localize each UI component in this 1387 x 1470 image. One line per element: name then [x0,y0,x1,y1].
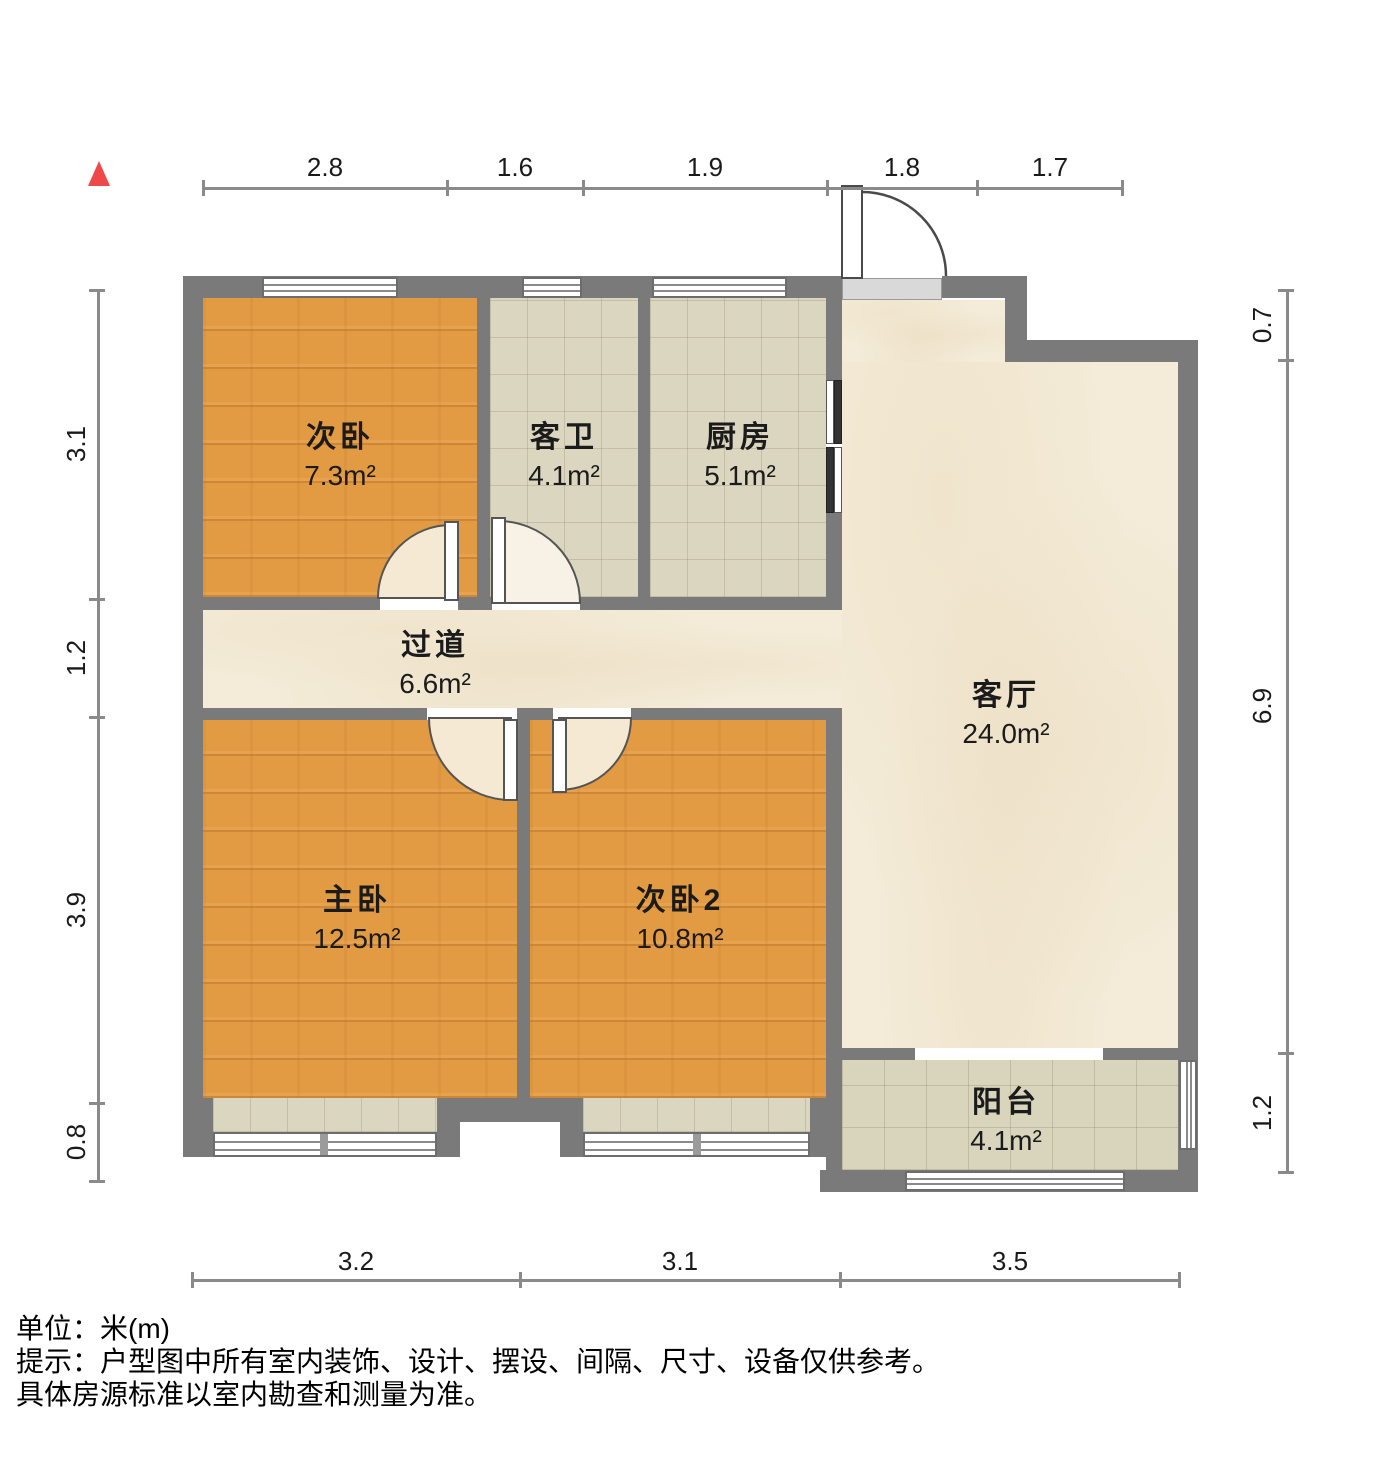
wall-kitchen-right-upper [826,298,842,380]
wall-corridor-top-2 [458,597,492,610]
kitchen-slide-door-panel-1 [826,380,834,444]
wall-step-horizontal [1027,340,1198,362]
dim-top-3: 1.9 [665,152,745,182]
window-bedroom2 [262,277,398,298]
dim-line-top [203,187,1123,190]
wall-corridor-bottom-1 [183,708,427,720]
dim-line-bottom [192,1279,1180,1282]
kitchen-slide-door-panel-4 [834,447,842,513]
dim-tick [89,1102,105,1105]
wall-corridor-bottom-2 [517,708,553,720]
dim-tick [89,716,105,719]
wall-bathroom-kitchen [638,298,650,610]
room-area: 10.8m² [636,923,725,955]
room-label-bedroom2: 次卧 7.3m² [304,412,376,492]
bay-stub-3 [560,1122,583,1157]
footer-unit-line: 单位：米(m) [16,1312,940,1345]
dim-tick [519,1272,522,1288]
room-name: 主卧 [313,875,400,919]
room-area: 4.1m² [528,460,600,492]
dim-tick [1178,1272,1181,1288]
dim-bottom-1: 3.2 [316,1246,396,1276]
dim-bottom-3: 3.5 [970,1246,1050,1276]
floorplan-canvas: 次卧 7.3m² 客卫 4.1m² 厨房 5.1m² 过道 6.6m² 客厅 2… [0,0,1387,1470]
room-name: 过道 [399,620,471,664]
wall-bottom-seg-1 [183,1098,213,1122]
room-area: 24.0m² [962,718,1049,750]
room-label-master: 主卧 12.5m² [313,875,400,955]
entry-door-leaf [842,186,862,278]
dim-top-2: 1.6 [475,152,555,182]
wall-master-bedroom3 [517,720,530,1098]
room-name: 客厅 [962,670,1049,714]
bay-stub-2 [437,1122,460,1157]
wall-corridor-bottom-3 [631,708,842,720]
footer-notice-line2: 具体房源标准以室内勘查和测量为准。 [16,1378,940,1411]
corridor-floor [203,610,842,708]
dim-tick [1278,1171,1294,1174]
room-name: 次卧 [304,412,376,456]
livingroom-floor-upper [842,300,1005,362]
wall-corridor-top-3 [580,597,842,610]
dim-top-4: 1.8 [862,152,942,182]
kitchen-slide-door-panel-3 [826,447,834,513]
room-area: 6.6m² [399,668,471,700]
dim-tick [1121,180,1124,196]
bay-window-sill-master [213,1098,437,1132]
dim-tick [1278,1052,1294,1055]
window-bathroom [522,277,582,298]
room-label-bedroom3: 次卧2 10.8m² [636,875,725,955]
entry-door-arc [862,192,946,276]
entry-threshold [842,278,942,300]
dim-top-1: 2.8 [285,152,365,182]
dim-tick [446,180,449,196]
room-name: 阳台 [970,1077,1042,1121]
room-area: 12.5m² [313,923,400,955]
dim-right-3: 1.2 [1247,1073,1277,1153]
wall-bottom-seg-3 [810,1098,842,1122]
dim-right-1: 0.7 [1247,285,1277,365]
dim-line-left [97,290,100,1182]
dim-tick [191,1272,194,1288]
room-area: 5.1m² [704,460,776,492]
dim-left-2: 1.2 [61,618,91,698]
wall-step-vertical [1005,276,1027,362]
window-kitchen [652,277,787,298]
room-name: 客卫 [528,412,600,456]
window-balcony-right [1179,1060,1197,1150]
room-label-corridor: 过道 6.6m² [399,620,471,700]
dim-right-2: 6.9 [1247,666,1277,746]
dim-left-1: 3.1 [61,404,91,484]
room-label-bathroom: 客卫 4.1m² [528,412,600,492]
dim-top-5: 1.7 [1010,152,1090,182]
dim-line-right [1286,290,1289,1173]
dim-tick [826,180,829,196]
kitchen-slide-door-panel-2 [834,380,842,444]
window-balcony-bottom [905,1171,1125,1191]
dim-tick [582,180,585,196]
wall-kitchen-right-lower [826,513,842,610]
room-name: 次卧2 [636,875,725,919]
room-area: 4.1m² [970,1125,1042,1157]
bay-window-master [213,1132,437,1157]
dim-bottom-2: 3.1 [640,1246,720,1276]
bay-stub-4 [810,1122,826,1157]
room-label-livingroom: 客厅 24.0m² [962,670,1049,750]
north-arrow-icon [88,161,110,186]
dim-tick [1278,289,1294,292]
bay-window-sill-bedroom3 [583,1098,810,1132]
dim-tick [89,598,105,601]
dim-tick [839,1272,842,1288]
room-label-balcony: 阳台 4.1m² [970,1077,1042,1157]
footer-notes: 单位：米(m) 提示：户型图中所有室内装饰、设计、摆设、间隔、尺寸、设备仅供参考… [16,1312,940,1411]
bay-stub-1 [183,1122,213,1157]
dim-tick [89,1180,105,1183]
wall-bedroom2-bathroom [477,298,490,610]
room-label-kitchen: 厨房 5.1m² [704,412,776,492]
dim-tick [976,180,979,196]
dim-tick [202,180,205,196]
wall-balcony-top-left [826,1048,915,1060]
dim-tick [1278,359,1294,362]
footer-notice-line: 提示：户型图中所有室内装饰、设计、摆设、间隔、尺寸、设备仅供参考。 [16,1345,940,1378]
room-area: 7.3m² [304,460,376,492]
room-name: 厨房 [704,412,776,456]
wall-corridor-top-1 [203,597,380,610]
dim-left-3: 3.9 [61,870,91,950]
wall-balcony-top-right [1103,1048,1178,1060]
dim-left-4: 0.8 [61,1102,91,1182]
dim-tick [89,289,105,292]
bay-window-bedroom3 [583,1132,810,1157]
wall-bottom-seg-2 [437,1098,583,1122]
